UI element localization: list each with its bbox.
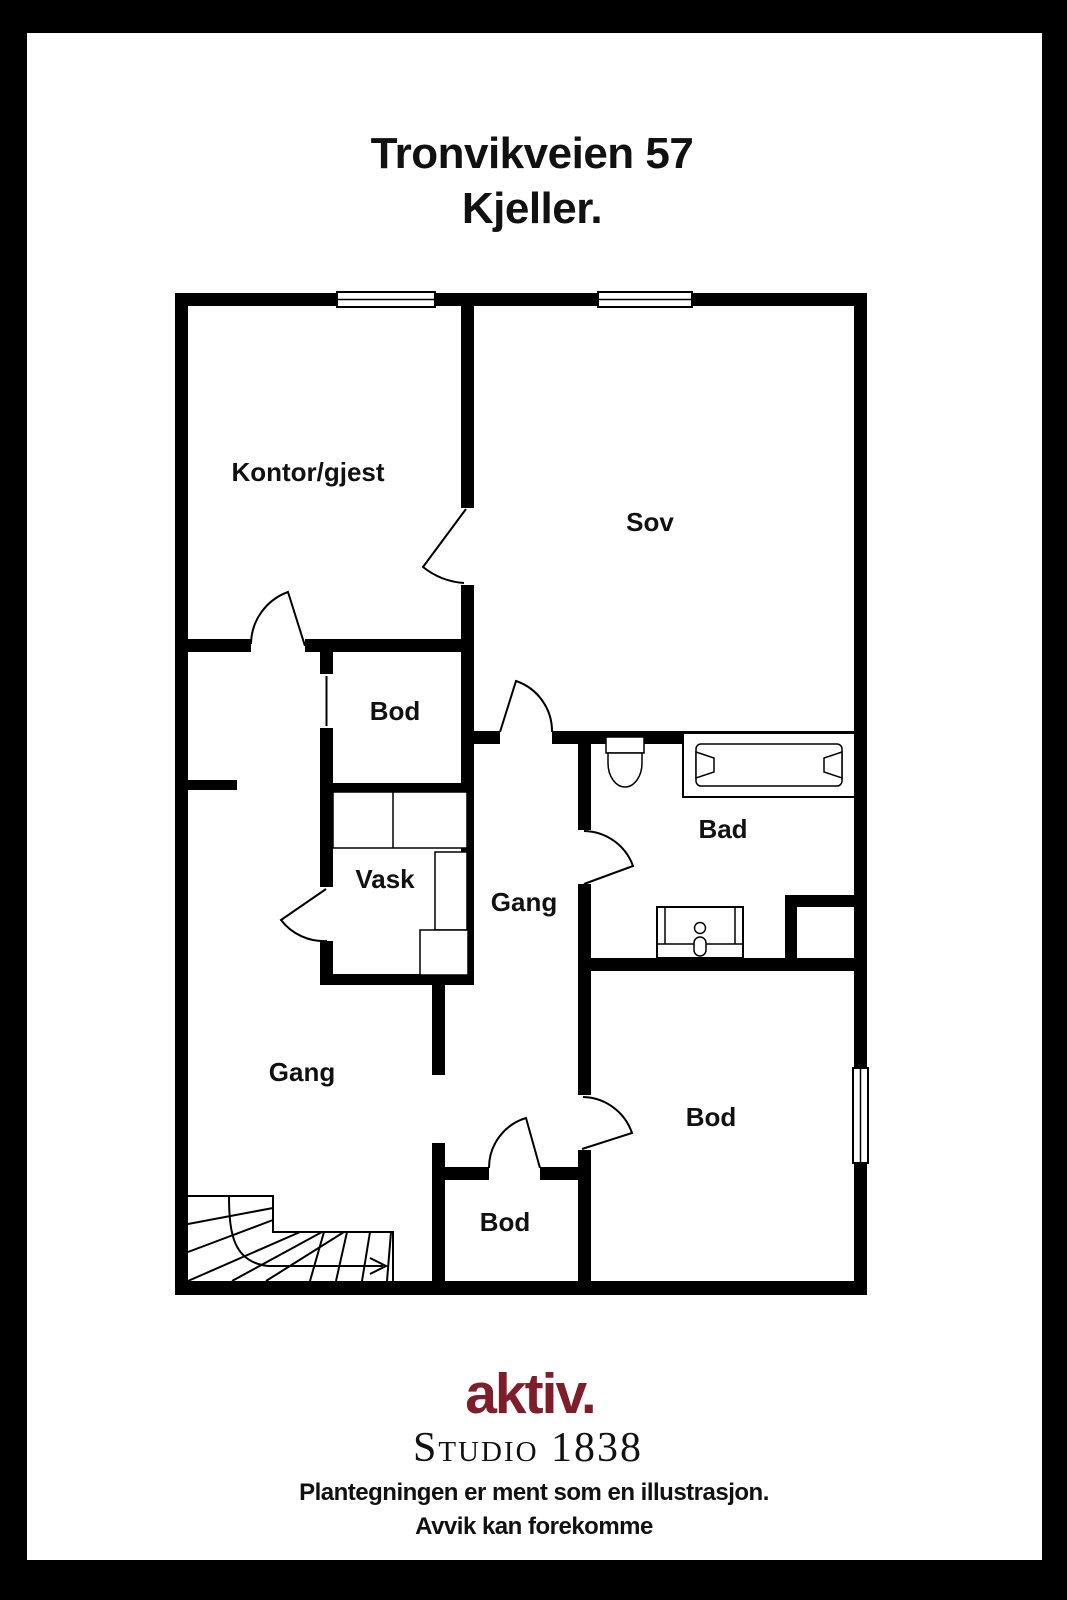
disclaimer-line2: Avvik kan forekomme [415,1513,653,1540]
page-title-line1: Tronvikveien 57 [371,129,694,178]
room-label-bod-upper: Bod [370,696,421,726]
studio-1838-logo: Studio 1838 [413,1425,643,1471]
room-label-kontor-gjest: Kontor/gjest [231,457,384,487]
sink-icon [657,907,743,958]
room-label-bad: Bad [698,814,747,844]
room-label-sov: Sov [626,507,674,537]
page-title-line2: Kjeller. [462,184,602,233]
floorplan-page: Tronvikveien 57 Kjeller. [0,0,1067,1600]
room-label-bod-right: Bod [686,1102,737,1132]
disclaimer-line1: Plantegningen er ment som en illustrasjo… [299,1479,769,1506]
bathtub-icon [683,733,855,797]
aktiv-logo: aktiv. [465,1362,595,1426]
room-label-gang-lower: Gang [269,1057,335,1087]
room-label-bod-center: Bod [480,1207,531,1237]
room-label-gang-upper: Gang [491,887,557,917]
room-label-vask: Vask [355,864,415,894]
